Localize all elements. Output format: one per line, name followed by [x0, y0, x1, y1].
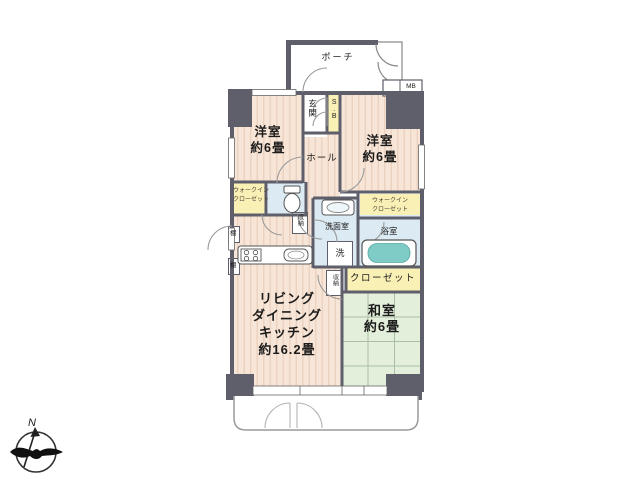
- japanese-room-name: 和室: [344, 303, 420, 319]
- balcony-outline: [234, 396, 418, 430]
- window-left-w1: [229, 138, 235, 178]
- label-closet: クローゼット: [348, 273, 418, 285]
- label-shelf-lower: 棚: [230, 262, 237, 270]
- kitchen-sink-bowl: [288, 251, 304, 259]
- label-washer: 洗: [330, 248, 350, 259]
- label-wic-right: ウォークイン クローゼット: [362, 197, 418, 215]
- label-porch: ポーチ: [316, 52, 360, 63]
- ldk-line4: 約16.2畳: [237, 342, 337, 359]
- label-meter-box: MB: [401, 83, 421, 91]
- western-left-size: 約6畳: [236, 141, 300, 157]
- bathtub: [368, 244, 410, 263]
- porch-left-wall: [286, 40, 291, 92]
- door-arc-western-right: [340, 168, 364, 192]
- wic-right-line1: ウォークイン: [362, 197, 418, 206]
- porch-door-arc-1: [376, 44, 398, 66]
- door-arc-toilet: [262, 215, 282, 235]
- pillar-top-left: [228, 89, 252, 127]
- japanese-room-size: 約6畳: [344, 319, 420, 335]
- washbasin-bowl: [327, 203, 349, 213]
- window-right-w2: [419, 145, 425, 189]
- toilet-tank: [284, 186, 300, 193]
- label-western-left: 洋室 約6畳: [236, 125, 300, 156]
- label-compass-north: N: [28, 417, 36, 431]
- wall-right: [420, 91, 424, 392]
- label-hall: ホール: [299, 153, 345, 165]
- western-left-name: 洋室: [236, 125, 300, 141]
- door-arc-entrance: [303, 68, 327, 92]
- label-shelf-upper: 棚: [230, 230, 237, 238]
- window-balcony-band: [253, 386, 387, 395]
- western-right-name: 洋室: [342, 134, 418, 150]
- ldk-line2: ダイニング: [237, 308, 337, 325]
- western-right-size: 約6畳: [342, 150, 418, 166]
- plan-linework: [0, 0, 640, 480]
- wic-left-line1: ウォークイン: [233, 187, 265, 196]
- ldk-line1: リビング: [237, 291, 337, 308]
- floor-plan: ポーチ MB 玄関 S.B 洋室 約6畳 洋室 約6畳 ホール ウォークイン ク…: [0, 0, 640, 480]
- label-western-right: 洋室 約6畳: [342, 134, 418, 165]
- compass: [10, 427, 63, 472]
- wic-right-line2: クローゼット: [362, 206, 418, 215]
- label-storage-hall: 収納: [295, 214, 303, 226]
- label-storage-ldk: 収納: [330, 274, 338, 286]
- ldk-line3: キッチン: [237, 325, 337, 342]
- label-washroom: 洗面室: [316, 222, 358, 232]
- toilet-bowl: [284, 194, 300, 213]
- label-wic-left: ウォークイン クローゼット: [233, 187, 265, 205]
- label-ldk: リビング ダイニング キッチン 約16.2畳: [237, 291, 337, 359]
- window-top-w1: [252, 90, 296, 96]
- label-japanese-room: 和室 約6畳: [344, 303, 420, 336]
- label-shoebox: S.B: [329, 99, 338, 120]
- label-entrance: 玄関: [307, 99, 318, 118]
- wic-left-line2: クローゼット: [233, 196, 265, 205]
- porch-top-wall: [286, 40, 378, 45]
- pillar-top-right: [386, 93, 422, 129]
- label-bathroom: 浴室: [372, 226, 406, 237]
